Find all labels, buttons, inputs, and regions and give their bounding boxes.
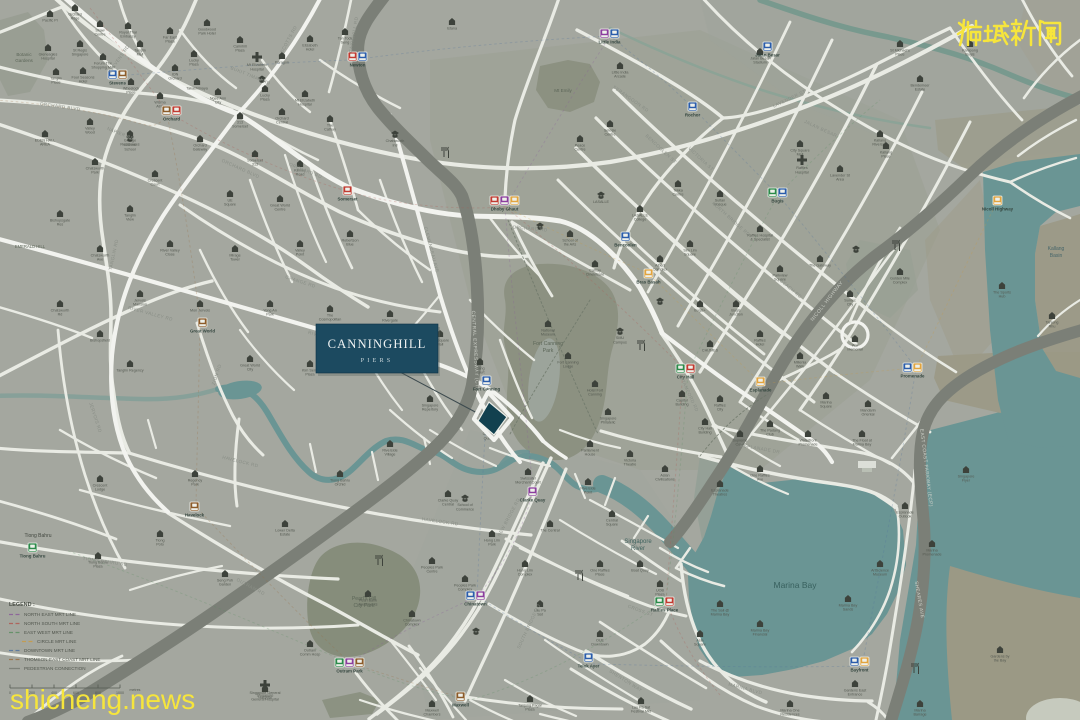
svg-text:Mon Jervois: Mon Jervois xyxy=(190,308,210,312)
svg-text:Rivergate: Rivergate xyxy=(382,318,398,322)
svg-text:Ave: Ave xyxy=(757,478,763,482)
svg-text:Rd: Rd xyxy=(58,313,63,317)
svg-text:Theatres: Theatres xyxy=(713,493,728,497)
svg-text:Complex: Complex xyxy=(893,281,908,285)
svg-text:Seng: Seng xyxy=(341,41,350,45)
svg-text:Bayfront: Bayfront xyxy=(850,668,869,673)
svg-text:Place: Place xyxy=(51,81,60,85)
svg-text:Centre: Centre xyxy=(672,193,683,197)
svg-text:Plaza: Plaza xyxy=(235,49,245,53)
svg-text:Cosmopolitan: Cosmopolitan xyxy=(319,318,342,322)
svg-text:Park Hotel: Park Hotel xyxy=(198,32,215,36)
svg-text:Campus: Campus xyxy=(613,340,627,344)
svg-text:Flyer: Flyer xyxy=(962,479,971,483)
svg-text:Place: Place xyxy=(126,91,135,95)
svg-text:Place: Place xyxy=(881,155,890,159)
svg-text:Basin: Basin xyxy=(1050,253,1063,259)
svg-text:Dhoby Ghaut: Dhoby Ghaut xyxy=(491,207,519,212)
svg-text:Residences: Residences xyxy=(780,713,799,717)
svg-text:Tiong Bahru: Tiong Bahru xyxy=(24,533,51,539)
svg-text:Bencoolen: Bencoolen xyxy=(614,243,637,248)
svg-text:Bras Basah: Bras Basah xyxy=(636,280,660,285)
svg-text:Hotel: Hotel xyxy=(79,80,88,84)
svg-text:Central: Central xyxy=(442,503,454,507)
svg-text:Barrage: Barrage xyxy=(913,713,926,717)
svg-text:Somerset: Somerset xyxy=(337,197,358,202)
svg-text:AREA: AREA xyxy=(40,143,51,147)
svg-text:Promenade: Promenade xyxy=(922,553,941,557)
svg-text:Oriental: Oriental xyxy=(862,413,875,417)
svg-text:Place: Place xyxy=(595,573,604,577)
svg-text:Arcade: Arcade xyxy=(614,75,626,79)
svg-text:Square: Square xyxy=(694,643,706,647)
svg-text:The Gateway: The Gateway xyxy=(809,263,831,267)
svg-text:Square: Square xyxy=(684,253,696,257)
svg-text:Junction: Junction xyxy=(729,313,743,317)
svg-text:Village: Village xyxy=(384,453,395,457)
svg-text:Intl: Intl xyxy=(393,143,398,147)
svg-text:Hotel: Hotel xyxy=(306,48,315,52)
svg-text:Somerset: Somerset xyxy=(232,125,248,129)
svg-text:Sat: Sat xyxy=(537,613,543,617)
svg-text:Stadium: Stadium xyxy=(753,61,767,65)
svg-text:Court: Court xyxy=(475,371,484,375)
svg-text:Rhu: Rhu xyxy=(1049,325,1056,329)
svg-text:Wood: Wood xyxy=(85,131,95,135)
svg-text:PEDESTRIAN CONNECTION: PEDESTRIAN CONNECTION xyxy=(24,666,86,671)
svg-text:Close: Close xyxy=(165,253,174,257)
svg-text:Gardens: Gardens xyxy=(15,58,33,63)
svg-text:Philatelic: Philatelic xyxy=(601,421,616,425)
svg-text:Havelock: Havelock xyxy=(185,513,205,518)
svg-text:Telok Ayer: Telok Ayer xyxy=(578,664,600,669)
svg-text:Clarke Quay: Clarke Quay xyxy=(520,498,546,503)
svg-text:NORTH EAST MRT LINE: NORTH EAST MRT LINE xyxy=(24,612,76,617)
svg-text:Court: Court xyxy=(150,183,159,187)
svg-text:Paragon: Paragon xyxy=(275,60,289,64)
svg-text:Sands: Sands xyxy=(843,608,854,612)
svg-text:Stevens: Stevens xyxy=(109,81,126,86)
svg-text:Centre: Centre xyxy=(604,133,615,137)
svg-text:Bugis+: Bugis+ xyxy=(694,308,705,312)
svg-text:Hub: Hub xyxy=(999,295,1006,299)
svg-text:Embassy: Embassy xyxy=(120,35,135,39)
svg-text:Orchard: Orchard xyxy=(168,77,181,81)
svg-text:NORTH SOUTH MRT LINE: NORTH SOUTH MRT LINE xyxy=(24,621,80,626)
svg-text:Museum: Museum xyxy=(873,573,887,577)
svg-text:Square: Square xyxy=(820,405,832,409)
svg-text:Plaza: Plaza xyxy=(189,63,199,67)
svg-text:Park: Park xyxy=(91,171,99,175)
svg-text:House: House xyxy=(585,453,596,457)
svg-text:Bugis: Bugis xyxy=(771,199,784,204)
svg-text:Point: Point xyxy=(584,491,592,495)
svg-text:City: City xyxy=(717,408,724,412)
svg-text:River: River xyxy=(631,546,645,552)
svg-text:Park: Park xyxy=(266,313,274,317)
svg-text:Estate: Estate xyxy=(280,533,290,537)
svg-text:Pacific Pl: Pacific Pl xyxy=(42,18,57,22)
svg-text:Centre: Centre xyxy=(574,148,585,152)
svg-text:Great World: Great World xyxy=(190,329,215,334)
svg-text:Boat Quay: Boat Quay xyxy=(631,568,649,572)
svg-text:Civilisations: Civilisations xyxy=(655,478,675,482)
svg-text:Plaza: Plaza xyxy=(305,373,315,377)
svg-text:Lodge: Lodge xyxy=(95,488,105,492)
svg-text:Building: Building xyxy=(675,403,688,407)
svg-text:Financial: Financial xyxy=(753,633,768,637)
svg-text:Newton: Newton xyxy=(350,63,366,68)
svg-text:Square: Square xyxy=(606,523,618,527)
svg-text:Promenade: Promenade xyxy=(901,374,925,379)
svg-text:CANNINGHILL: CANNINGHILL xyxy=(328,337,427,351)
svg-text:Raffles Place: Raffles Place xyxy=(651,608,679,613)
svg-text:Outram Park: Outram Park xyxy=(336,669,363,674)
svg-text:City: City xyxy=(847,303,854,307)
svg-text:Pearl's Hill: Pearl's Hill xyxy=(352,596,376,602)
svg-text:Club: Club xyxy=(766,433,774,437)
svg-text:Repertory: Repertory xyxy=(422,408,438,412)
svg-text:Park: Park xyxy=(543,348,554,354)
svg-text:313: 313 xyxy=(252,163,258,167)
svg-text:Chinatown: Chinatown xyxy=(464,602,487,607)
svg-text:& Specialist: & Specialist xyxy=(750,238,769,242)
svg-text:Rochor: Rochor xyxy=(685,113,701,118)
svg-text:Ave: Ave xyxy=(97,258,103,262)
svg-text:Memorial: Memorial xyxy=(847,348,862,352)
svg-text:Theatre: Theatre xyxy=(624,463,637,467)
svg-text:Jalan Besar: Jalan Besar xyxy=(755,53,780,58)
svg-text:Istana: Istana xyxy=(447,26,458,30)
svg-text:Bugis: Bugis xyxy=(965,53,974,57)
svg-text:Tanglin Regency: Tanglin Regency xyxy=(116,368,143,372)
svg-text:Entrance: Entrance xyxy=(848,693,863,697)
svg-text:Festival Mkt: Festival Mkt xyxy=(631,710,651,714)
svg-text:EMERALD HILL: EMERALD HILL xyxy=(15,244,46,249)
svg-text:Hotel: Hotel xyxy=(756,343,765,347)
svg-text:Place: Place xyxy=(895,53,904,57)
svg-text:Hospital: Hospital xyxy=(258,695,272,699)
svg-text:Building: Building xyxy=(698,431,711,435)
svg-text:Park: Park xyxy=(191,483,199,487)
svg-text:Plaza: Plaza xyxy=(93,565,103,569)
svg-text:Merchant Court: Merchant Court xyxy=(515,481,540,485)
svg-text:Blue: Blue xyxy=(346,243,353,247)
svg-text:Nicoll Highway: Nicoll Highway xyxy=(982,207,1014,212)
svg-text:Lodge: Lodge xyxy=(563,365,573,369)
svg-text:Hospital: Hospital xyxy=(250,67,264,71)
svg-text:Marina Bay: Marina Bay xyxy=(711,613,730,617)
svg-text:Hospital: Hospital xyxy=(298,103,312,107)
svg-text:Kallang: Kallang xyxy=(1048,246,1065,252)
svg-text:Cineleisure: Cineleisure xyxy=(586,273,604,277)
svg-text:Park: Park xyxy=(488,543,496,547)
svg-text:Square: Square xyxy=(224,203,236,207)
svg-text:CIRCLE MRT LINE: CIRCLE MRT LINE xyxy=(37,639,76,644)
svg-text:Cathay: Cathay xyxy=(324,128,336,132)
svg-text:shicheng.news: shicheng.news xyxy=(10,684,195,715)
svg-text:College: College xyxy=(634,218,647,222)
svg-text:Plaza: Plaza xyxy=(260,98,270,102)
svg-text:Comm Hosp: Comm Hosp xyxy=(300,653,321,657)
svg-text:Orchard: Orchard xyxy=(163,117,180,122)
svg-text:LEGEND :: LEGEND : xyxy=(9,602,35,608)
svg-text:Mt Emily: Mt Emily xyxy=(554,88,572,93)
svg-text:Marina Bay: Marina Bay xyxy=(853,443,872,447)
svg-text:Central: Central xyxy=(276,121,288,125)
svg-text:Res: Res xyxy=(57,223,64,227)
svg-text:Museum: Museum xyxy=(541,333,555,337)
svg-text:Plaza: Plaza xyxy=(525,708,535,712)
svg-text:Singapore: Singapore xyxy=(624,539,652,545)
svg-text:the Bay: the Bay xyxy=(994,659,1007,663)
svg-text:Chambers: Chambers xyxy=(423,713,440,717)
svg-text:City: City xyxy=(215,101,222,105)
svg-text:Centre: Centre xyxy=(426,570,437,574)
svg-text:Canning: Canning xyxy=(588,393,602,397)
svg-text:Rdge: Rdge xyxy=(71,17,80,21)
svg-text:Bishopsfield: Bishopsfield xyxy=(90,338,110,342)
svg-text:Plaza: Plaza xyxy=(655,593,665,597)
svg-text:THOMSON-EAST COAST MRT LINE: THOMSON-EAST COAST MRT LINE xyxy=(24,657,101,662)
svg-text:DOWNTOWN MRT LINE: DOWNTOWN MRT LINE xyxy=(24,648,75,653)
svg-text:City Park: City Park xyxy=(353,603,374,609)
svg-text:the Arts: the Arts xyxy=(564,243,577,247)
svg-text:Poto: Poto xyxy=(156,543,164,547)
svg-text:Hospital: Hospital xyxy=(795,170,809,174)
svg-text:Maxwell: Maxwell xyxy=(452,703,469,708)
svg-text:Botanic: Botanic xyxy=(16,52,32,57)
svg-text:Fort Canning: Fort Canning xyxy=(533,341,563,347)
svg-text:Complex: Complex xyxy=(405,623,420,627)
svg-text:School: School xyxy=(124,147,135,151)
svg-text:CHIJMES: CHIJMES xyxy=(702,348,719,352)
svg-text:Mall: Mall xyxy=(137,53,144,57)
svg-text:Tower: Tower xyxy=(230,258,241,262)
svg-text:Marina Bay: Marina Bay xyxy=(774,580,818,590)
svg-text:PIERS: PIERS xyxy=(361,357,394,364)
svg-text:Estate: Estate xyxy=(915,88,925,92)
svg-text:Promenade: Promenade xyxy=(798,443,817,447)
svg-text:Road: Road xyxy=(296,173,305,177)
svg-text:Gateway: Gateway xyxy=(193,148,208,152)
svg-text:Hospital: Hospital xyxy=(41,57,55,61)
svg-text:Point: Point xyxy=(296,253,304,257)
svg-text:Area: Area xyxy=(836,178,845,182)
svg-text:Commerce: Commerce xyxy=(456,507,474,511)
svg-text:Centre: Centre xyxy=(94,33,105,37)
svg-text:Complex: Complex xyxy=(653,268,668,272)
svg-text:Singapore: Singapore xyxy=(72,53,89,57)
svg-text:Outlook: Outlook xyxy=(899,515,912,519)
svg-text:Downtown: Downtown xyxy=(591,643,608,647)
svg-text:Centre: Centre xyxy=(274,208,285,212)
svg-text:Plaza: Plaza xyxy=(165,40,175,44)
svg-text:Tiong Bahru: Tiong Bahru xyxy=(20,554,46,559)
svg-text:Orchid: Orchid xyxy=(335,483,346,487)
svg-text:Walk: Walk xyxy=(796,365,804,369)
svg-text:Esplanade: Esplanade xyxy=(750,388,773,393)
svg-text:Complex: Complex xyxy=(518,573,533,577)
svg-text:View: View xyxy=(126,218,134,222)
svg-text:Garden: Garden xyxy=(219,583,231,587)
svg-text:Little India: Little India xyxy=(599,40,622,45)
svg-text:LASALLE: LASALLE xyxy=(593,200,610,204)
svg-text:EAST WEST MRT LINE: EAST WEST MRT LINE xyxy=(24,630,73,635)
svg-text:Takashimaya: Takashimaya xyxy=(186,86,208,90)
svg-text:City: City xyxy=(247,368,254,372)
svg-text:The Central: The Central xyxy=(540,528,559,532)
